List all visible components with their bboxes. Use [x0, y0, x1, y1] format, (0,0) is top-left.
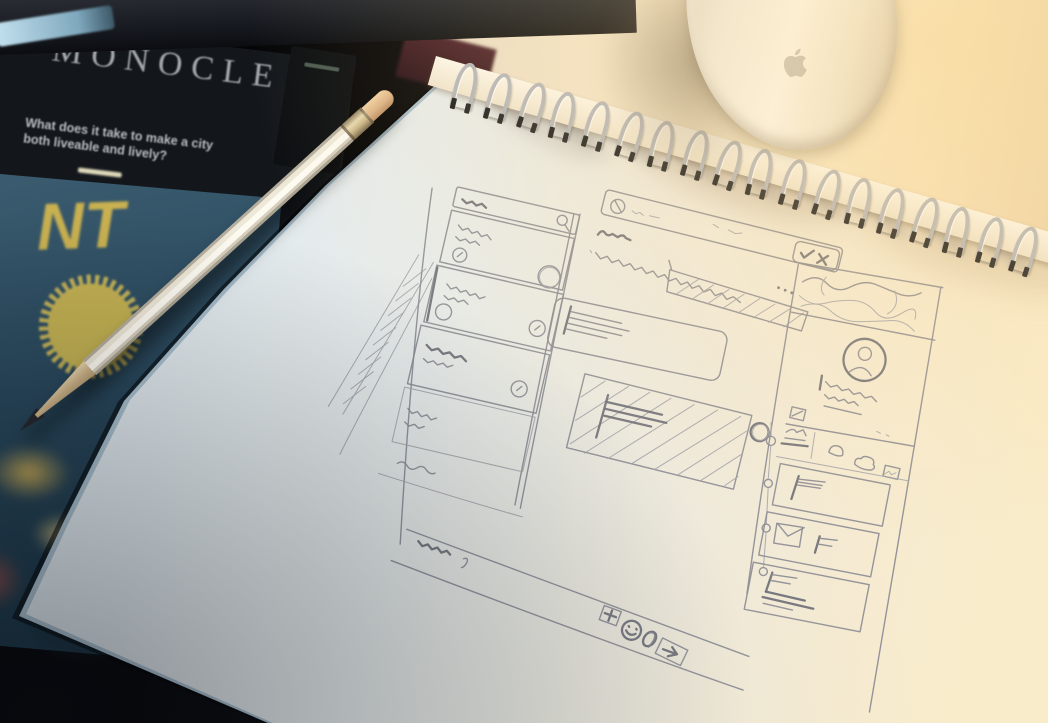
rail-card-text — [743, 558, 871, 636]
flag-icon — [766, 572, 772, 592]
gutter-hatch-strip — [318, 243, 436, 466]
search-icon — [555, 214, 572, 231]
profile-avatar — [839, 335, 889, 385]
envelope-icon — [772, 521, 804, 549]
overflow-dots-icon — [776, 286, 793, 294]
sketch-hero — [523, 264, 735, 385]
check-icon — [800, 248, 814, 259]
rail-card-flag — [771, 460, 892, 530]
sketch-footer — [381, 527, 762, 690]
plus-icon — [603, 608, 618, 622]
rail-card-envelope — [757, 508, 880, 581]
sketch-cell — [782, 426, 811, 449]
sketch-content-box — [566, 374, 753, 490]
clock-icon — [609, 198, 626, 215]
smiley-icon — [619, 618, 643, 642]
cover-title-letters: NT — [35, 186, 126, 265]
desk-photo: MONOCLE What does it take to make a city… — [0, 0, 1048, 723]
sketch-timeline — [724, 265, 837, 597]
composer-bar — [594, 605, 693, 666]
paperclip-icon — [639, 628, 660, 651]
apple-logo-icon — [782, 46, 811, 80]
x-icon — [817, 254, 828, 265]
note-icon — [790, 407, 806, 421]
camera-icon — [854, 454, 877, 471]
sketch-right-rail — [706, 255, 966, 712]
flag-icon — [791, 476, 798, 500]
sketch-sidebar — [352, 180, 591, 569]
upload-icon — [829, 444, 845, 456]
